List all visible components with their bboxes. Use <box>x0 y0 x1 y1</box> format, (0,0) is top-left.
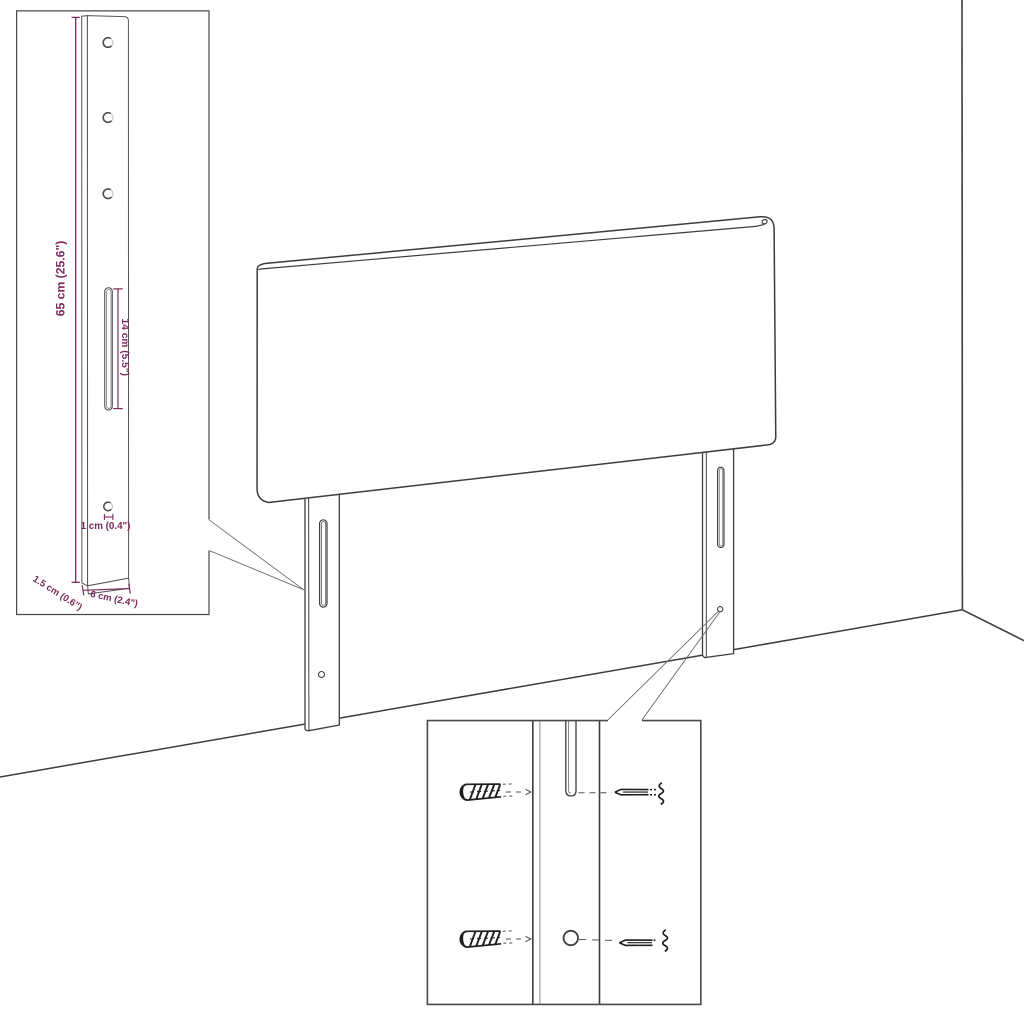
svg-text:65 cm (25.6"): 65 cm (25.6") <box>54 241 68 317</box>
svg-text:14 cm (5.5"): 14 cm (5.5") <box>119 319 130 377</box>
svg-text:1 cm (0.4"): 1 cm (0.4") <box>81 521 131 532</box>
